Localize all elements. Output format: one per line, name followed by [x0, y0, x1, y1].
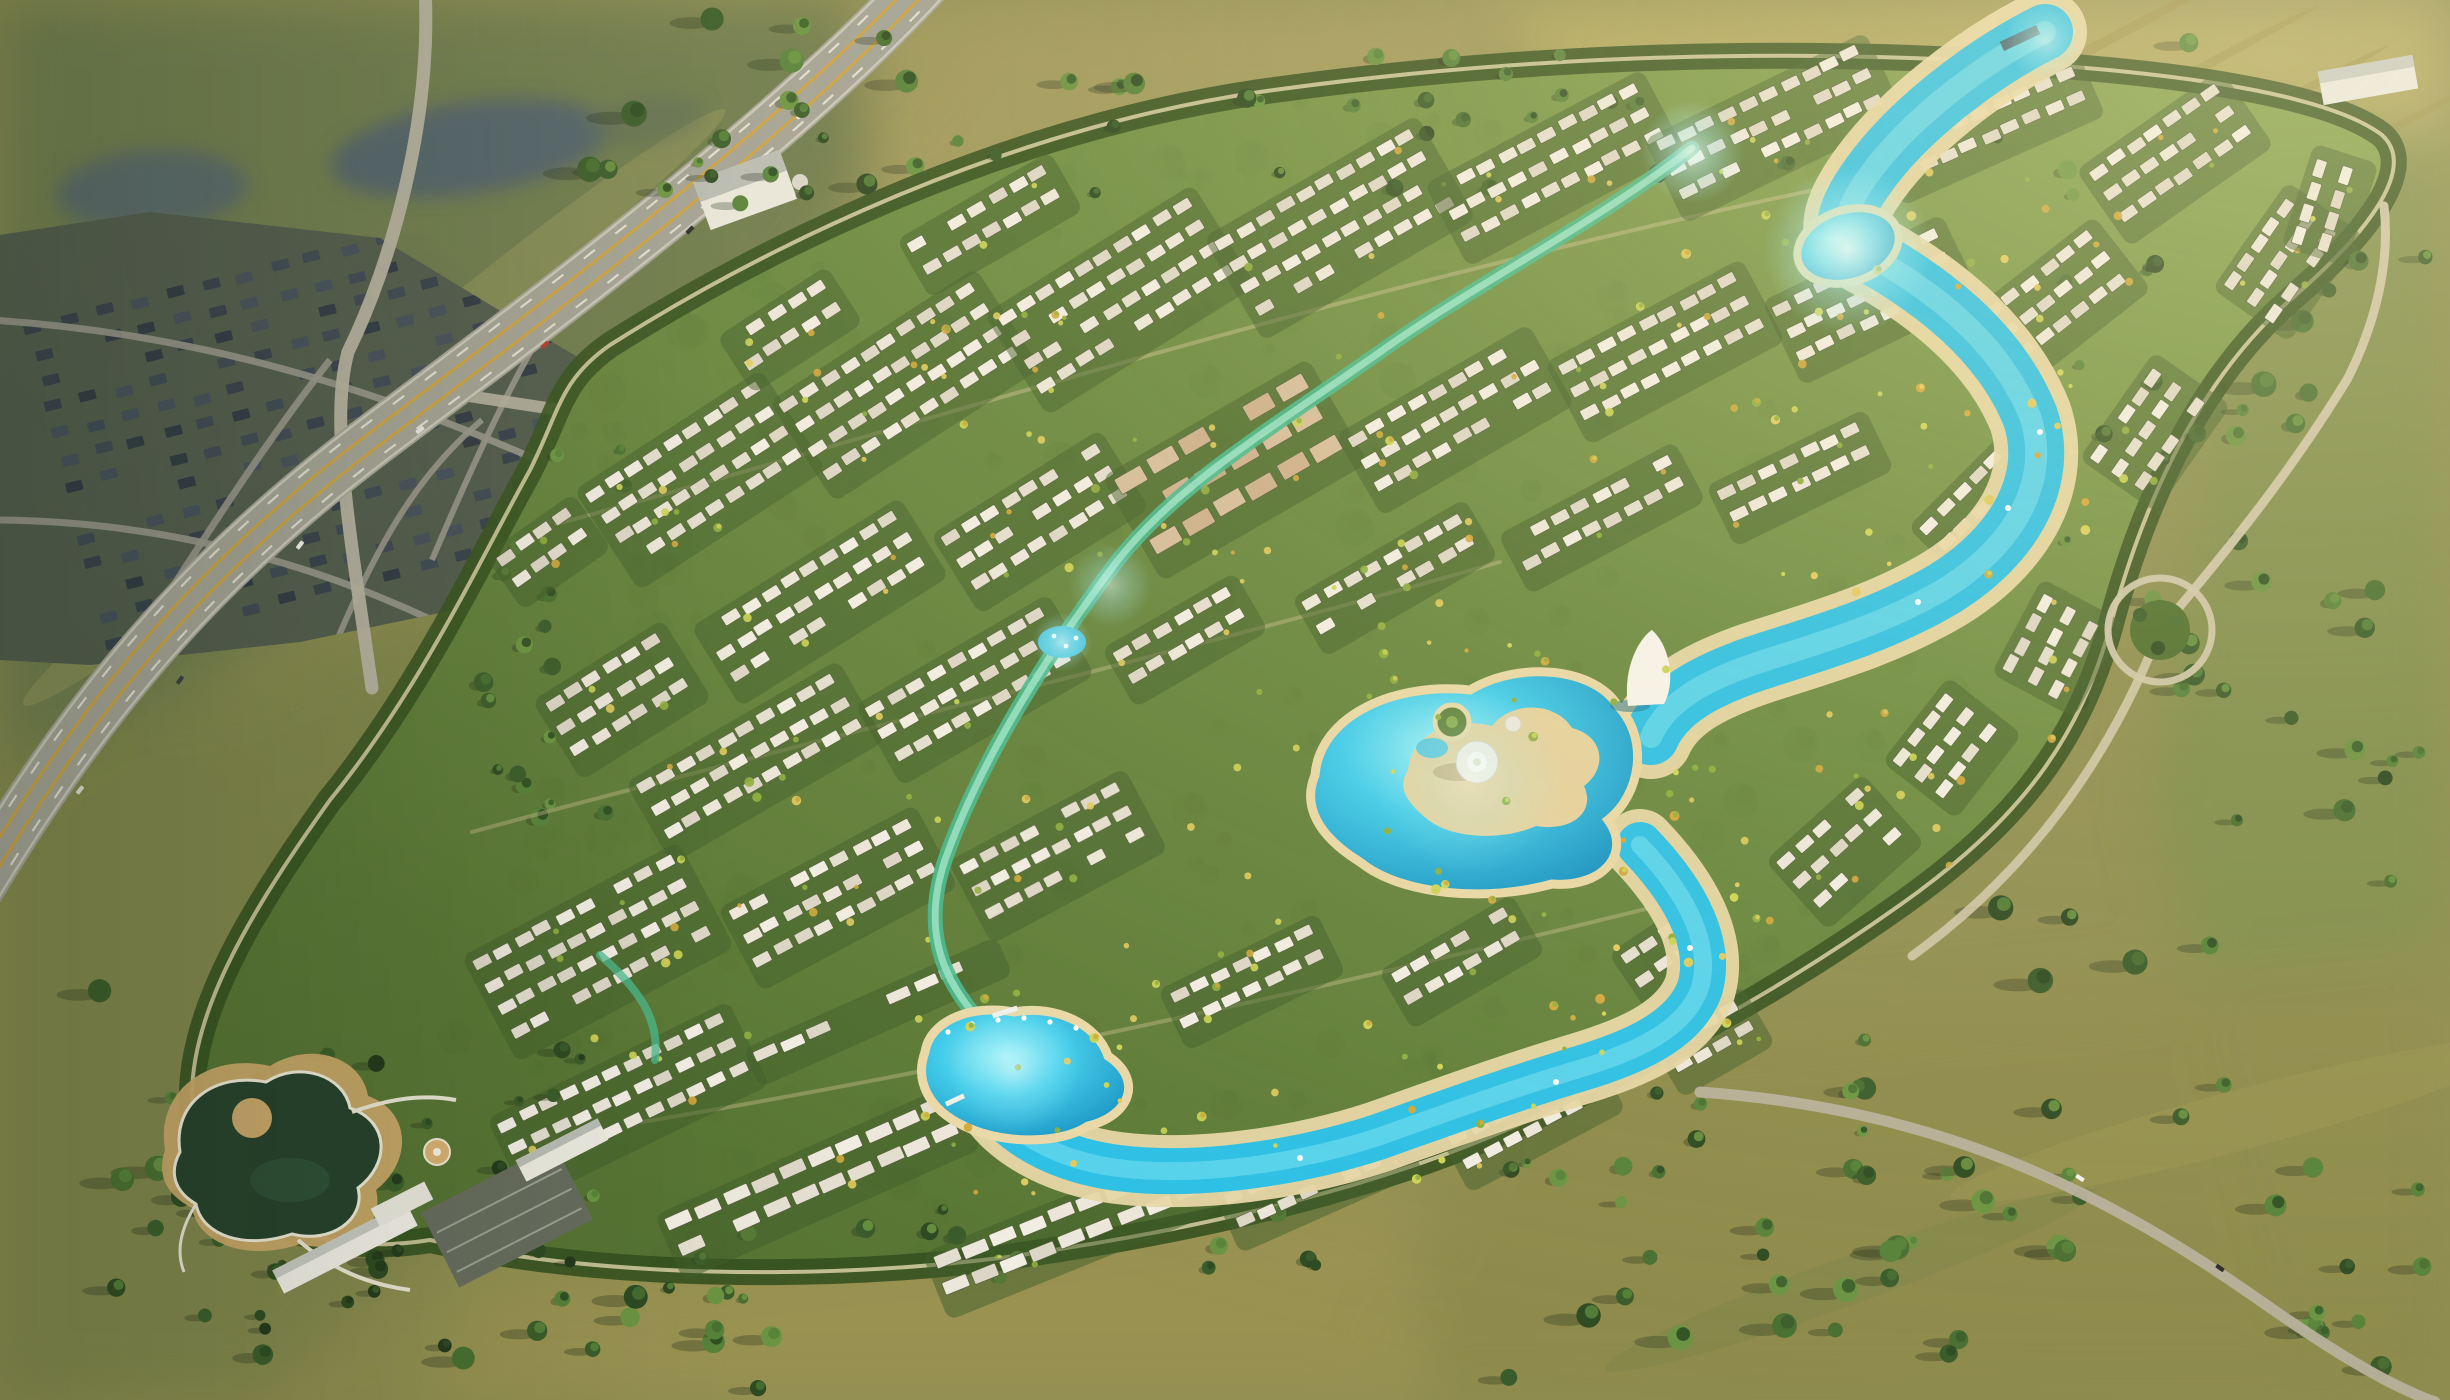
light-overlays [0, 0, 2450, 1400]
aerial-master-community-render [0, 0, 2450, 1400]
aerial-render-stage [0, 0, 2450, 1400]
